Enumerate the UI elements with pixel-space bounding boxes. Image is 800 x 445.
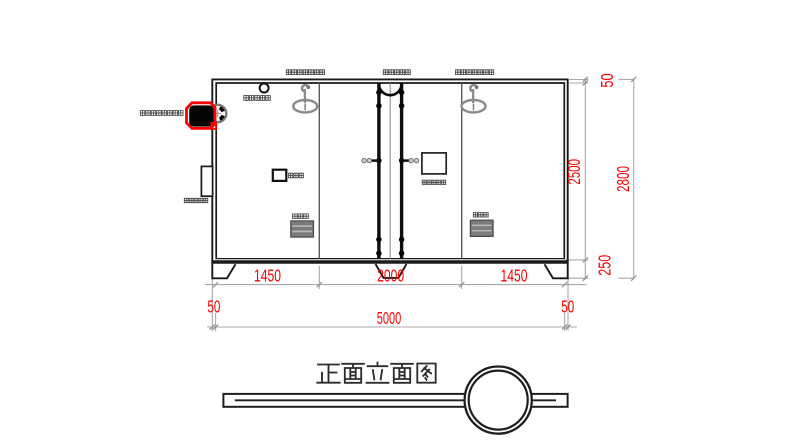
svg-text:1450: 1450: [501, 266, 528, 286]
svg-text:50: 50: [561, 297, 574, 317]
svg-text:250: 250: [596, 254, 616, 275]
svg-text:50: 50: [598, 73, 618, 87]
svg-text:50: 50: [207, 297, 220, 317]
svg-text:2500: 2500: [565, 159, 585, 185]
svg-text:1450: 1450: [254, 266, 281, 286]
svg-text:2000: 2000: [377, 266, 404, 286]
svg-text:2800: 2800: [614, 166, 634, 192]
svg-text:5000: 5000: [377, 308, 401, 329]
